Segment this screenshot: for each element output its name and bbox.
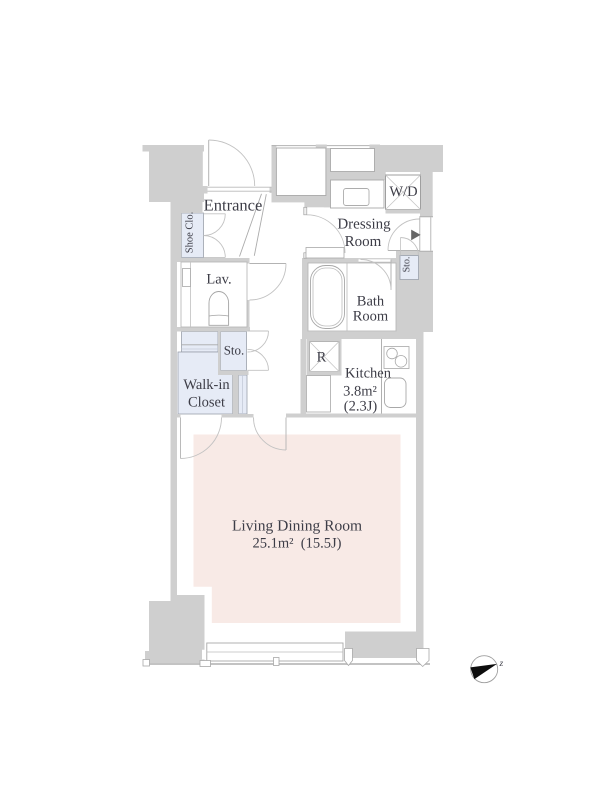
svg-text:Closet: Closet — [188, 395, 225, 411]
svg-text:Entrance: Entrance — [204, 196, 263, 215]
svg-text:R: R — [317, 350, 327, 366]
svg-text:Room: Room — [345, 234, 382, 250]
svg-text:Shoe Clo.: Shoe Clo. — [185, 212, 196, 253]
svg-text:Living Dining Room: Living Dining Room — [232, 518, 362, 535]
svg-text:Kitchen: Kitchen — [345, 366, 392, 382]
svg-text:Walk-in: Walk-in — [183, 377, 230, 393]
svg-text:W/D: W/D — [389, 184, 417, 200]
svg-text:3.8m²: 3.8m² — [343, 384, 377, 400]
svg-text:Sto.: Sto. — [224, 343, 245, 358]
svg-text:Room: Room — [353, 309, 389, 325]
svg-text:25.1m² (15.5J): 25.1m² (15.5J) — [253, 536, 342, 552]
svg-text:Sto.: Sto. — [401, 257, 412, 273]
svg-text:Lav.: Lav. — [206, 272, 231, 288]
svg-text:z: z — [498, 659, 503, 669]
svg-text:Dressing: Dressing — [337, 217, 391, 233]
svg-text:Bath: Bath — [357, 294, 385, 310]
svg-text:(2.3J): (2.3J) — [344, 399, 378, 415]
